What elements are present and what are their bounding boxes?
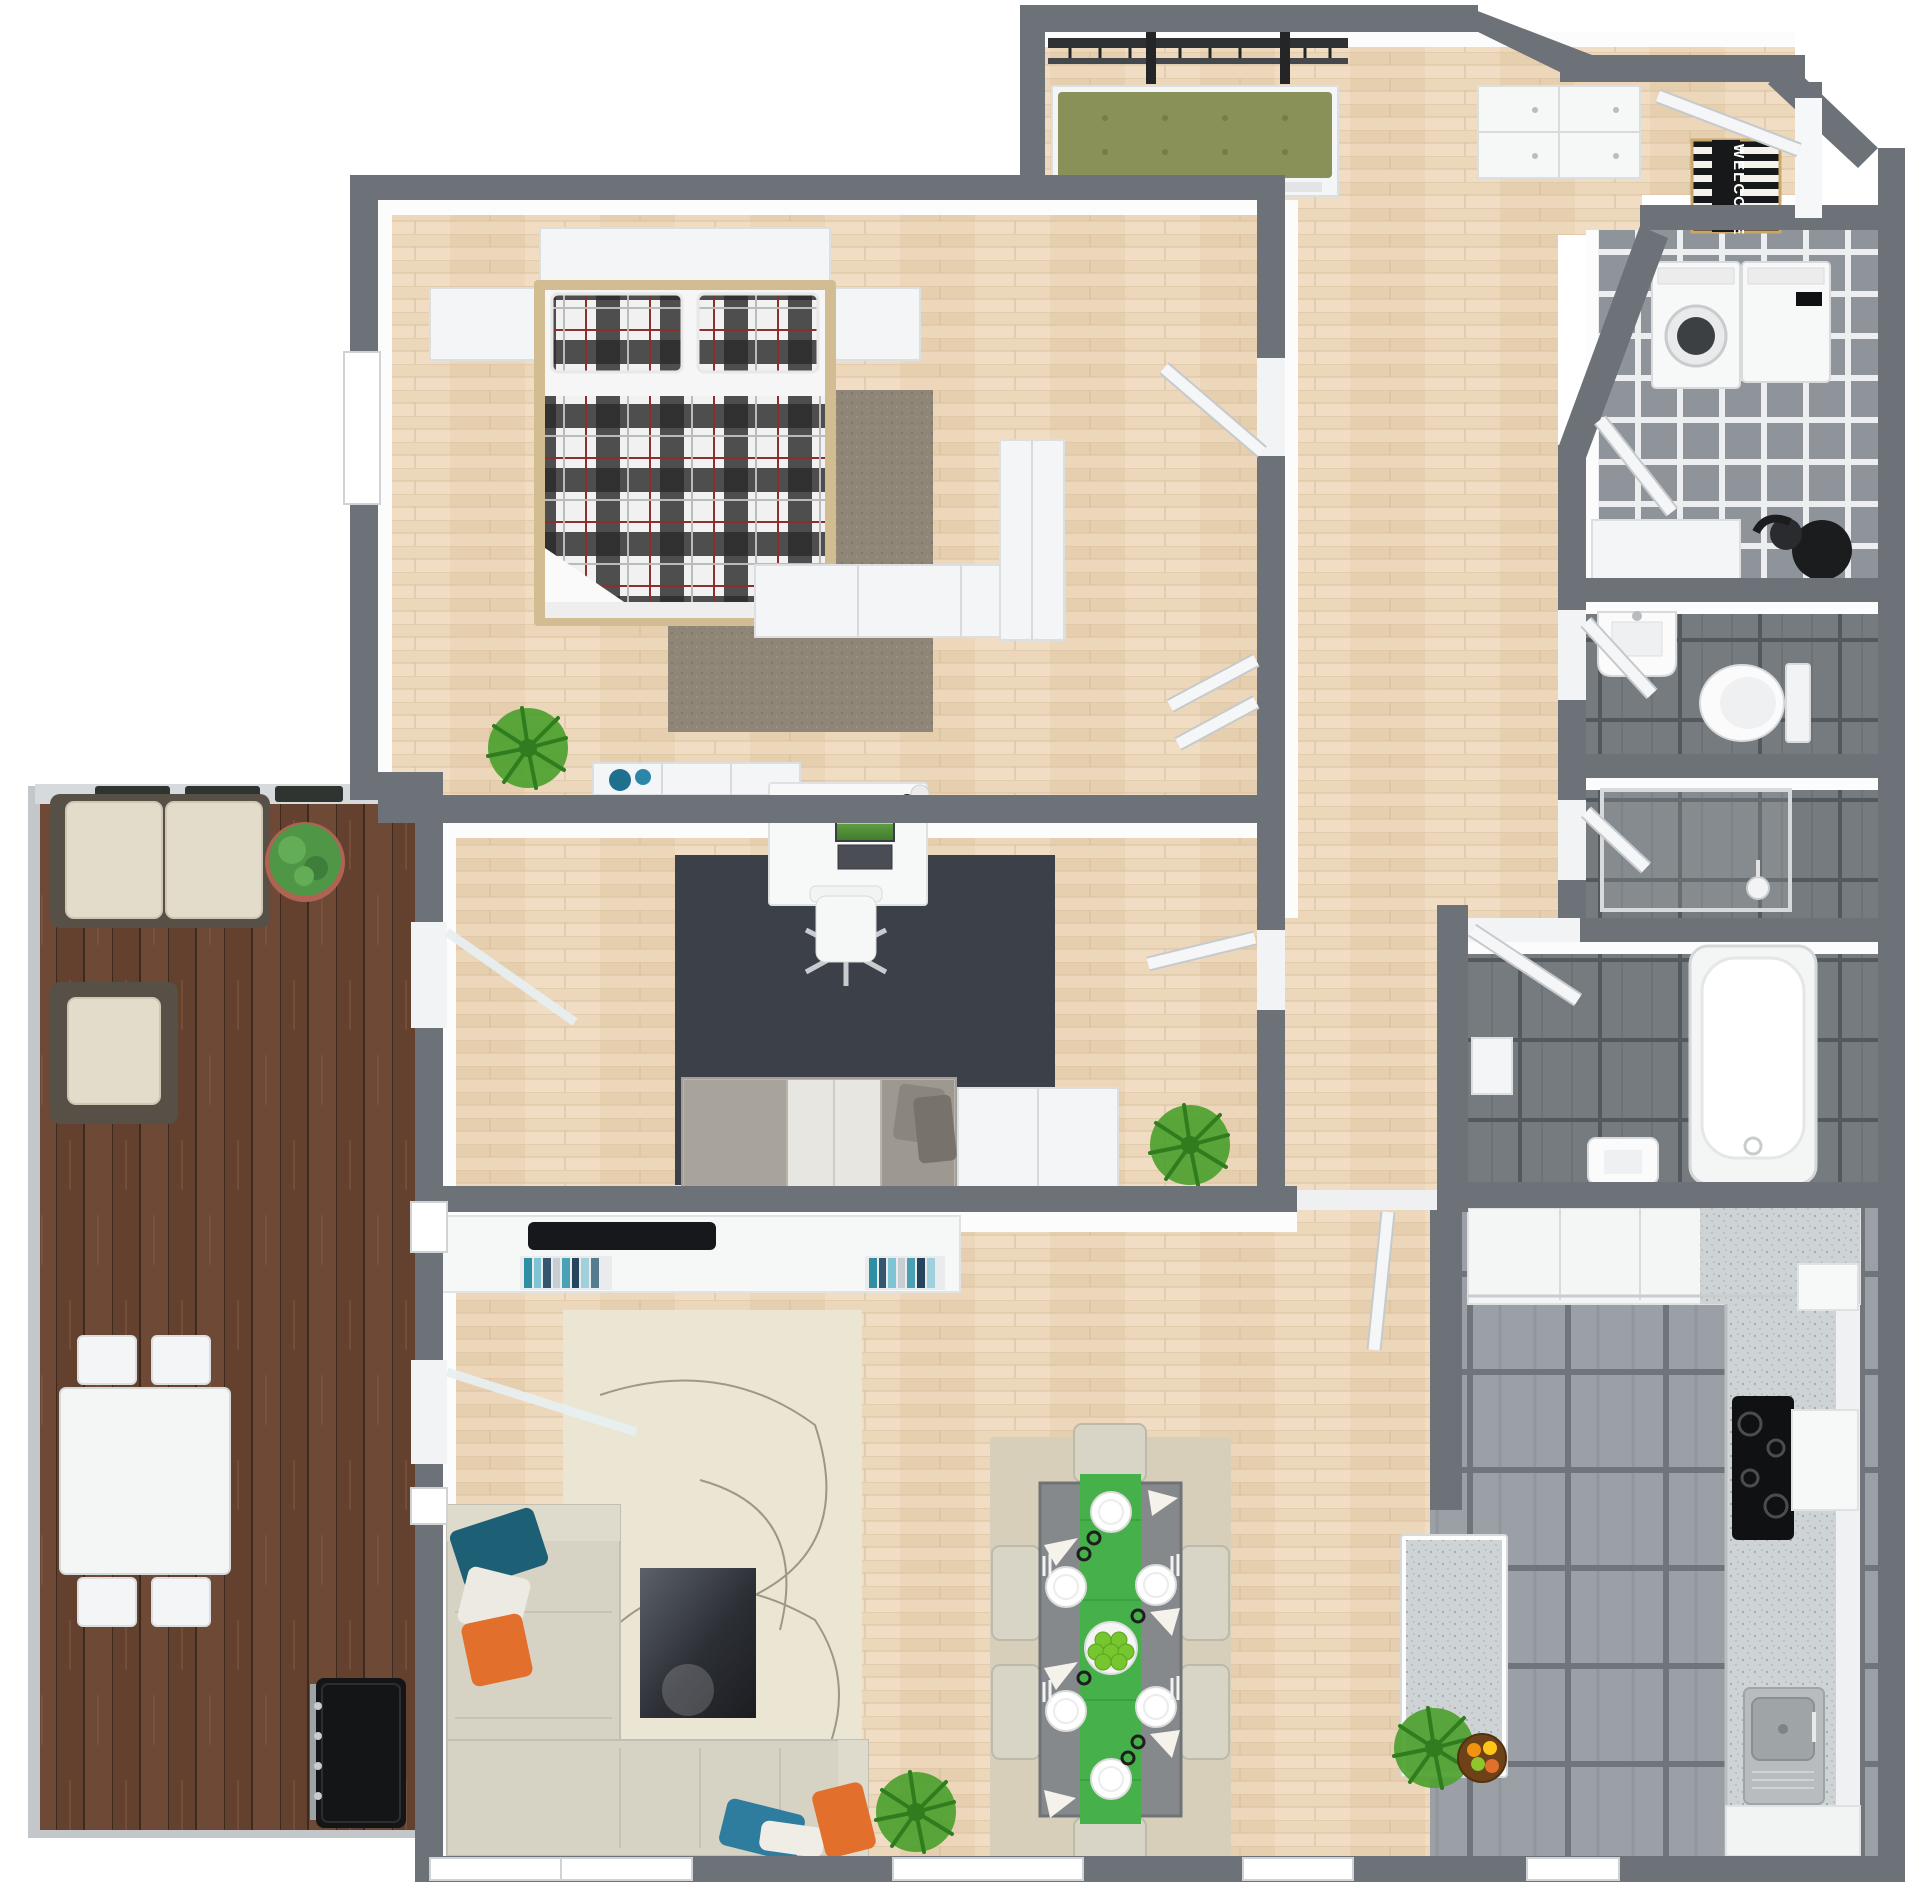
bathtub xyxy=(1690,946,1816,1184)
dryer xyxy=(1742,262,1830,382)
balcony-potted-boxwood xyxy=(265,822,345,902)
fruit-bowl xyxy=(1458,1734,1506,1782)
office-balcony-door-threshold xyxy=(411,922,447,1028)
bathroom-shelf xyxy=(1472,1038,1512,1094)
daybed-sofa xyxy=(682,1078,957,1190)
floor-plan-canvas: WELCOME xyxy=(0,0,1919,1902)
plaid-pillow xyxy=(698,294,818,372)
keyboard xyxy=(838,845,892,869)
room-dining xyxy=(990,1424,1231,1874)
grill xyxy=(310,1678,406,1828)
kitchen-sink xyxy=(1744,1688,1824,1804)
window xyxy=(1243,1858,1353,1880)
bedroom-potted-palm xyxy=(488,708,568,788)
living-window xyxy=(411,1488,447,1524)
centerpiece-bowl xyxy=(1085,1622,1137,1674)
office-door-opening xyxy=(1257,930,1285,1010)
base-cabinet xyxy=(1726,1806,1860,1856)
living-hall-opening xyxy=(1297,1190,1437,1210)
outdoor-chair xyxy=(78,1336,136,1384)
toilet xyxy=(1700,664,1810,742)
tv-soundbar xyxy=(528,1222,716,1250)
kitchen-right-counter xyxy=(1726,1264,1860,1856)
bedroom-door-opening xyxy=(1257,358,1285,456)
washing-machine xyxy=(1652,262,1740,388)
dining-chair xyxy=(992,1665,1040,1759)
window xyxy=(893,1858,1083,1880)
tv-console xyxy=(425,1216,960,1292)
blue-bowl xyxy=(635,769,651,785)
front-door-opening xyxy=(1795,98,1822,218)
entry-drawer-cabinet xyxy=(1478,86,1640,178)
hallway-floor-patch xyxy=(1558,195,1642,235)
outdoor-armchair xyxy=(50,982,178,1124)
wall-cabinet xyxy=(1798,1264,1858,1310)
blue-bowl xyxy=(609,769,631,791)
outdoor-chair xyxy=(152,1578,210,1626)
outdoor-table xyxy=(60,1388,230,1574)
living-window xyxy=(411,1202,447,1252)
coffee-table xyxy=(640,1568,756,1718)
shower-door-opening xyxy=(1558,800,1586,880)
office-potted-fern xyxy=(1150,1105,1230,1185)
dining-chair xyxy=(992,1546,1040,1640)
living-balcony-door-threshold xyxy=(411,1360,447,1464)
dining-chair xyxy=(1074,1424,1146,1482)
cooktop xyxy=(1732,1396,1794,1540)
hallway-lower-floor xyxy=(1285,918,1437,1212)
dining-chair xyxy=(1181,1546,1229,1640)
balcony-deck xyxy=(40,790,415,1830)
hood-cabinet xyxy=(1792,1410,1858,1510)
plaid-pillow xyxy=(552,294,682,372)
sink-basin xyxy=(1604,1150,1642,1174)
floor-plan: WELCOME xyxy=(0,0,1919,1902)
balcony-railing-left xyxy=(28,786,40,1838)
olive-cushion xyxy=(1058,92,1332,178)
outdoor-chair xyxy=(152,1336,210,1384)
outdoor-sofa xyxy=(50,794,270,928)
nightstand-left xyxy=(430,288,540,360)
bedroom-window xyxy=(344,352,380,504)
wc-door-opening xyxy=(1558,610,1586,700)
kitchen-island xyxy=(1394,1535,1507,1788)
hallway-floor xyxy=(1285,195,1558,918)
nightstand-right xyxy=(830,288,920,360)
orange-pillow xyxy=(460,1612,534,1687)
living-potted-fern xyxy=(876,1772,956,1852)
dining-chair xyxy=(1181,1665,1229,1759)
gray-pillow xyxy=(913,1094,958,1164)
outdoor-chair xyxy=(78,1578,136,1626)
window xyxy=(1527,1858,1619,1880)
